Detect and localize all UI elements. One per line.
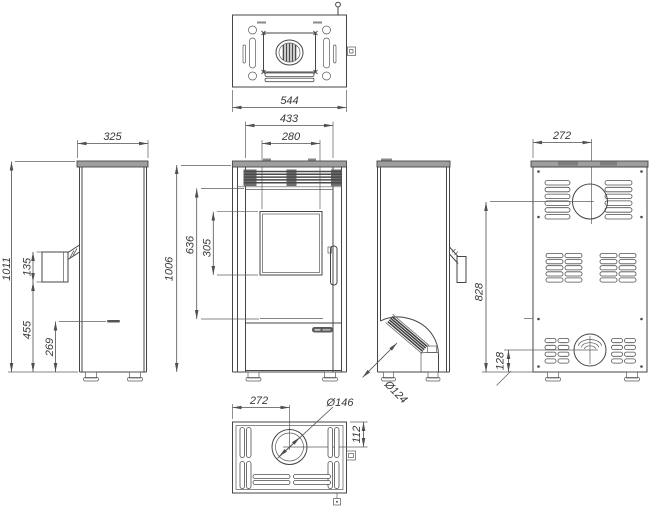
- right-side-view: Ø124: [363, 159, 467, 407]
- top-rear-slats: [265, 73, 314, 82]
- dim-label-325: 325: [103, 131, 122, 143]
- left-side-view: 325: [1, 131, 148, 381]
- dim-label-828: 828: [474, 282, 486, 301]
- bottom-front-slats: [253, 475, 331, 485]
- side-handle: [450, 247, 467, 283]
- dim-label-d146: Ø146: [326, 397, 355, 409]
- stove-technical-drawing: 544 433 280: [0, 0, 650, 508]
- dim-glass-height: 305: [202, 212, 259, 275]
- dim-top-width: 544: [233, 90, 347, 112]
- dim-label-455: 455: [22, 320, 34, 339]
- dim-label-1006: 1006: [164, 256, 176, 281]
- dim-side-depth: 325: [78, 131, 149, 158]
- dim-label-636: 636: [185, 235, 197, 254]
- dim-label-112: 112: [351, 426, 363, 444]
- dim-label-272-back: 272: [552, 130, 571, 142]
- upper-vent-slats: [545, 181, 632, 220]
- front-feet: [246, 372, 338, 381]
- top-plate-back: [531, 161, 648, 167]
- middle-vent-slats: [546, 254, 636, 283]
- dim-label-305: 305: [202, 238, 214, 257]
- dim-label-135: 135: [22, 257, 34, 276]
- dim-handle-length: 135: [22, 252, 42, 282]
- dim-total-height: 1011: [1, 162, 75, 373]
- dim-front-mid: 636: [185, 189, 260, 320]
- bottom-view: 272: [233, 395, 368, 505]
- dim-label-1011: 1011: [1, 257, 13, 281]
- side-connector: [347, 451, 356, 460]
- dim-handle-bottom: 455: [22, 282, 34, 372]
- dim-label-269: 269: [44, 338, 56, 357]
- side-handle: [42, 245, 80, 282]
- dim-label-544: 544: [280, 95, 298, 107]
- front-body-lines: [233, 167, 347, 372]
- side-feet: [84, 372, 143, 381]
- dim-body-height: 1006: [164, 165, 232, 372]
- thermostat-rod-bottom: [334, 493, 341, 505]
- top-flue-oval: [276, 40, 303, 65]
- air-lever-mark: [107, 320, 120, 323]
- dim-label-280: 280: [281, 131, 301, 143]
- back-feet: [546, 372, 640, 381]
- rod-knob: [336, 2, 341, 7]
- top-view: 544: [233, 2, 356, 112]
- front-view: 433 280: [164, 113, 347, 381]
- door-glass: [260, 212, 322, 276]
- top-plate-side: [377, 161, 450, 167]
- dim-label-128: 128: [495, 351, 507, 370]
- rear-flue-outlet: [381, 314, 439, 371]
- front-grille: [238, 170, 342, 190]
- dim-intake-height: 128: [495, 350, 512, 386]
- dim-lever-height: 269: [44, 322, 106, 373]
- back-view: 272: [474, 130, 649, 386]
- top-plate: [233, 161, 347, 167]
- dim-flue-height: 828: [474, 202, 487, 372]
- side-body-lines: [80, 167, 147, 372]
- dim-bottom-flue-depth: 112: [350, 422, 368, 447]
- dim-label-433: 433: [280, 113, 299, 125]
- top-tab: [600, 162, 617, 166]
- dim-label-272-bottom: 272: [249, 395, 268, 407]
- dim-label-d124: Ø124: [381, 378, 409, 406]
- top-tab: [558, 162, 578, 166]
- drawing-sheet: 544 433 280: [0, 0, 650, 508]
- side-connector: [348, 47, 356, 56]
- dim-rear-flue-diameter: Ø124: [363, 343, 410, 406]
- brand-logo: [312, 327, 333, 333]
- top-plate-side: [77, 161, 148, 167]
